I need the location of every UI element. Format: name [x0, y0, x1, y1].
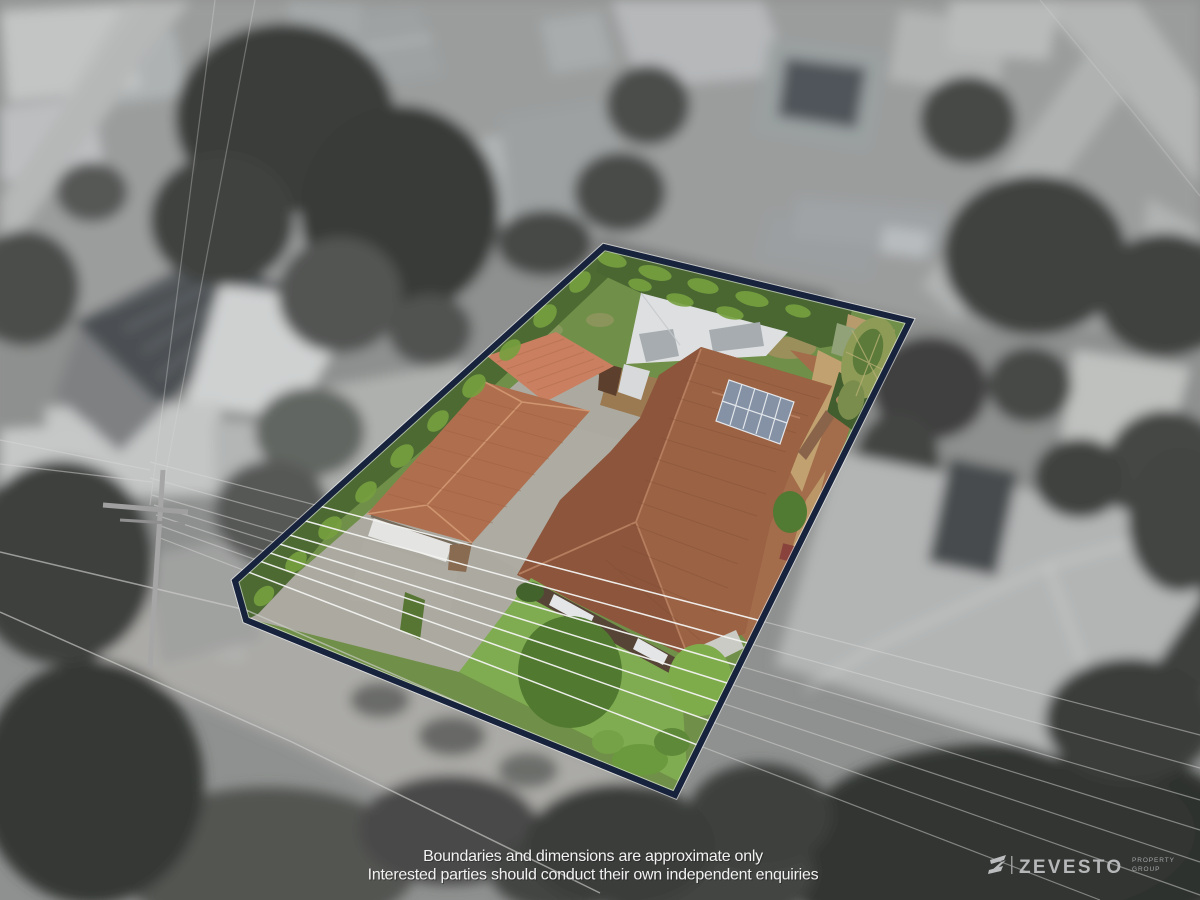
svg-text:Boundaries and dimensions are: Boundaries and dimensions are approximat…: [423, 848, 763, 865]
svg-text:GROUP: GROUP: [1132, 866, 1160, 873]
svg-text:Interested parties should cond: Interested parties should conduct their …: [368, 867, 819, 884]
svg-text:PROPERTY: PROPERTY: [1132, 857, 1175, 864]
svg-text:ZEVESTO: ZEVESTO: [1019, 857, 1123, 878]
